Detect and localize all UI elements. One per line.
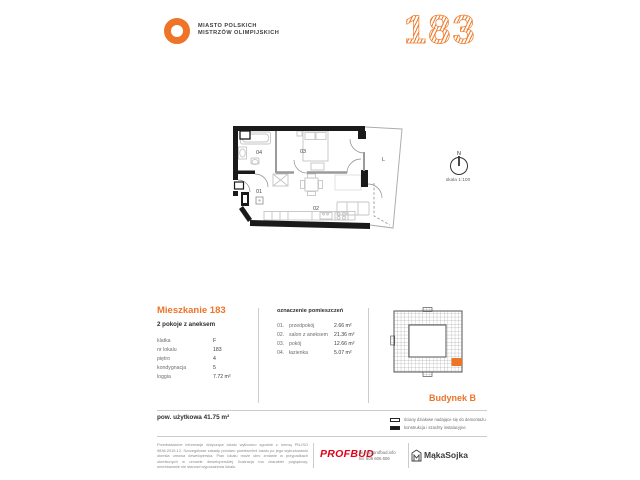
legend-text: ściany działowe nadające się do demontaż… (404, 417, 486, 422)
room-row: 02.salon z aneksem21.36 m² (277, 332, 372, 341)
loggia-outline (365, 127, 402, 228)
room-no: 02. (277, 332, 284, 338)
detail-row: piętro4 (157, 356, 262, 365)
room-area: 12.66 m² (334, 341, 354, 347)
apartment-subtitle: 2 pokoje z aneksem (157, 321, 215, 328)
brand-line1: MIASTO POLSKICH (198, 23, 279, 30)
brand-text: MIASTO POLSKICH MISTRZÓW OLIMPIJSKICH (198, 23, 279, 37)
detail-value: 7.72 m² (213, 374, 231, 380)
contact-phone: tel. 605 606 606 (359, 456, 396, 462)
detail-value: 4 (213, 356, 216, 362)
furniture (239, 131, 370, 220)
label-living: 02 (313, 206, 319, 212)
room-name: łazienka (289, 350, 308, 356)
label-hall: 01 (256, 189, 262, 195)
legend-swatch-outline (390, 418, 400, 423)
studio-name: MąkaSojka (424, 450, 468, 460)
detail-row: klatkaF (157, 338, 262, 347)
divider-horizontal-1 (157, 410, 487, 411)
usable-area: pow. użytkowa 41.75 m² (157, 414, 229, 421)
building-label: Budynek B (360, 393, 476, 403)
rooms-heading: oznaczenie pomieszczeń (277, 308, 343, 314)
room-no: 03. (277, 341, 284, 347)
legend-text: konstrukcja i szachty instalacyjne (404, 425, 466, 430)
room-row: 03.pokój12.66 m² (277, 341, 372, 350)
detail-value: 183 (213, 347, 222, 353)
room-area: 21.36 m² (334, 332, 354, 338)
compass-north-label: N (457, 151, 461, 157)
room-name: przedpokój (289, 323, 314, 329)
detail-row: kondygnacja5 (157, 365, 262, 374)
legend-row: konstrukcja i szachty instalacyjne (390, 425, 490, 432)
shaft-outline (240, 131, 250, 139)
legend-swatch-filled (390, 426, 400, 431)
room-no: 04. (277, 350, 284, 356)
label-bath: 04 (256, 150, 262, 156)
catalog-card: { "colors": {"accent": "#EE7428", "profb… (0, 0, 640, 480)
contact-info: biuro@profbud.info tel. 605 606 606 (359, 450, 396, 462)
label-loggia: L (382, 157, 385, 163)
partition-block (235, 182, 244, 189)
room-area: 2.66 m² (334, 323, 352, 329)
room-row: 01.przedpokój2.66 m² (277, 323, 372, 332)
room-name: pokój (289, 341, 301, 347)
detail-label: piętro (157, 356, 170, 362)
partition-walls (276, 131, 364, 173)
brand-line2: MISTRZÓW OLIMPIJSKICH (198, 30, 279, 37)
scale-label: skala 1:100 (430, 178, 486, 183)
detail-label: kondygnacja (157, 365, 186, 371)
divider-horizontal-2 (157, 436, 487, 437)
building-minimap (390, 306, 470, 380)
label-room: 03 (300, 149, 306, 155)
apartment-title: Mieszkanie 183 (157, 305, 226, 316)
footer-divider-2 (408, 443, 409, 468)
detail-row: nr lokalu183 (157, 347, 262, 356)
highlighted-unit (452, 358, 463, 366)
detail-value: 5 (213, 365, 216, 371)
room-name: salon z aneksem (289, 332, 328, 338)
room-area: 5.07 m² (334, 350, 352, 356)
brand-logo-icon (164, 18, 190, 44)
compass-icon: N (442, 148, 476, 178)
legal-disclaimer: Przedstawione informacje dotyczące lokal… (157, 442, 308, 470)
footer-divider-1 (313, 443, 314, 468)
detail-label: loggia (157, 374, 171, 380)
detail-label: klatka (157, 338, 171, 344)
makasojka-logo-icon (411, 449, 422, 462)
room-row: 04.łazienka5.07 m² (277, 350, 372, 359)
unit-number: 183 (404, 11, 477, 49)
detail-label: nr lokalu (157, 347, 177, 353)
detail-value: F (213, 338, 216, 344)
detail-row: loggia7.72 m² (157, 374, 262, 383)
legend-row: ściany działowe nadające się do demontaż… (390, 417, 490, 424)
loggia-dashed-line (374, 183, 390, 225)
walls (233, 126, 370, 229)
floor-plan: 01 02 03 04 L (227, 118, 427, 236)
wall-notch (243, 195, 247, 203)
room-no: 01. (277, 323, 284, 329)
